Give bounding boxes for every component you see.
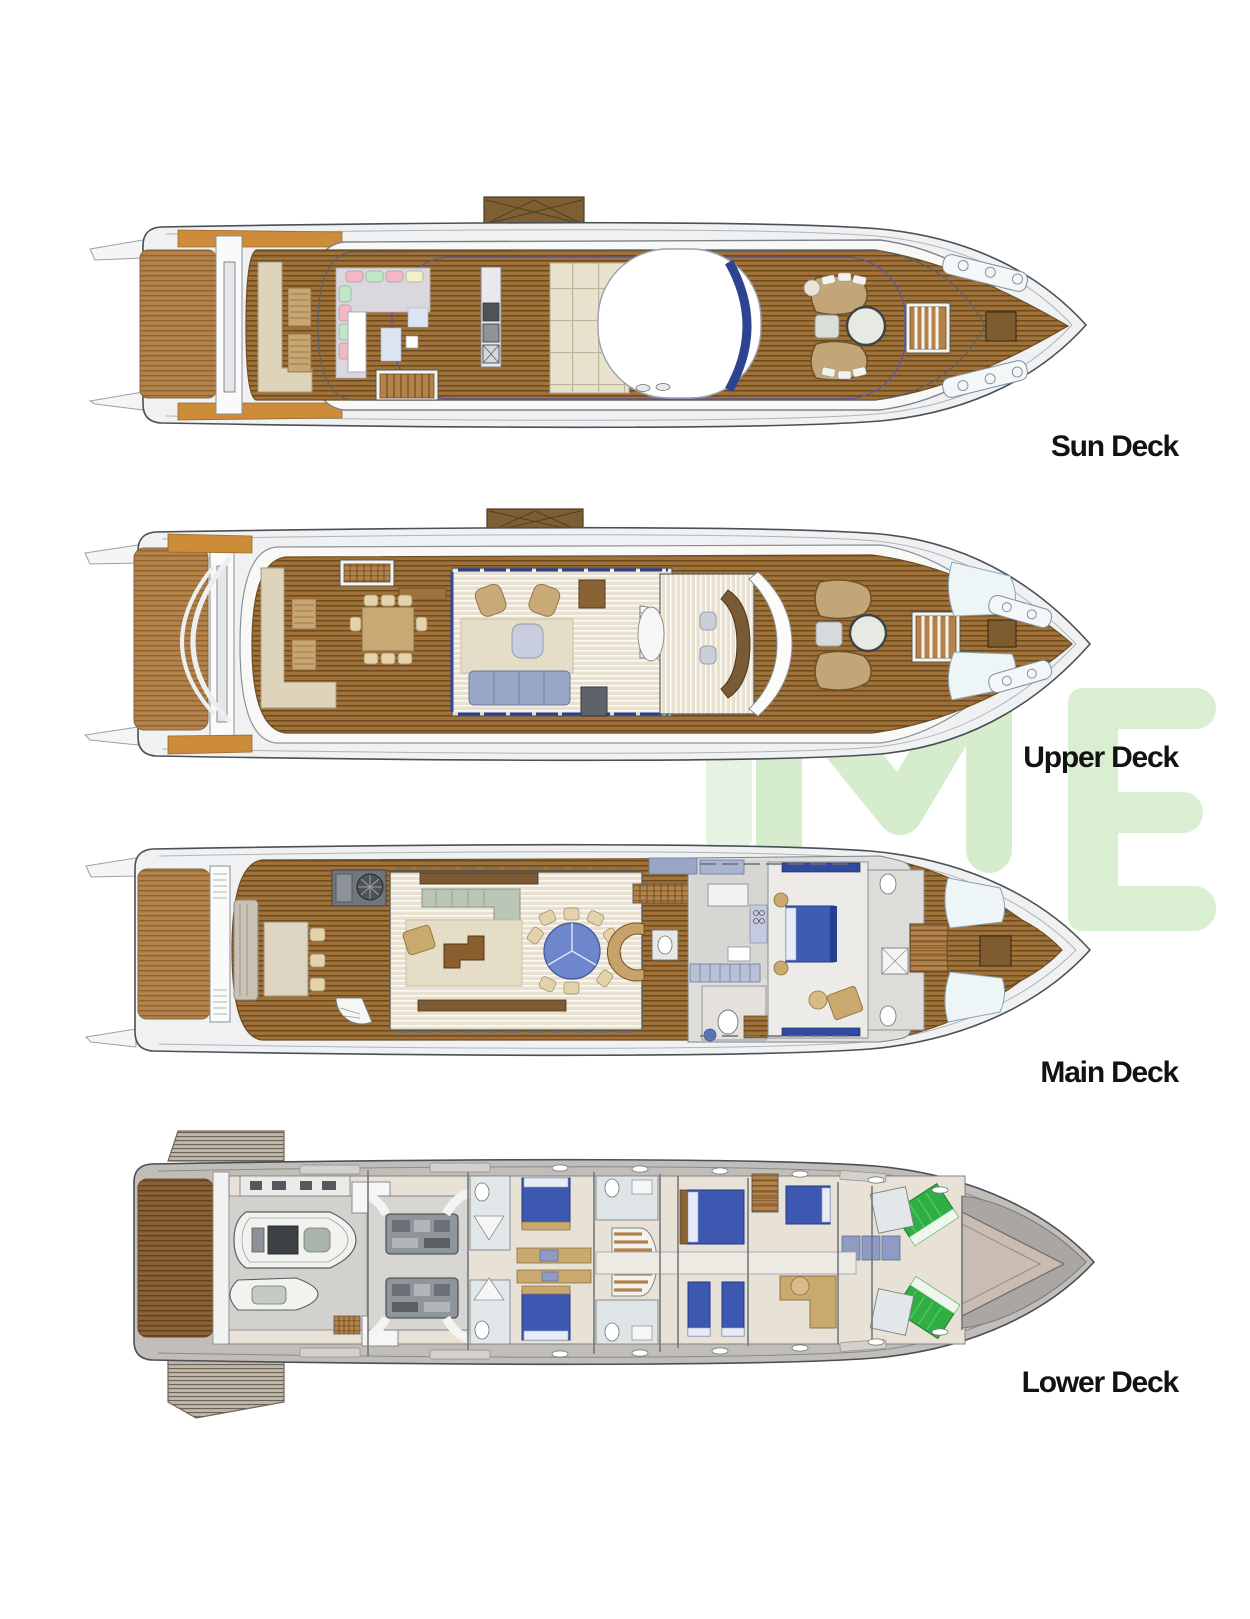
svg-text:Lower Deck: Lower Deck <box>1022 1366 1180 1399</box>
svg-text:Upper Deck: Upper Deck <box>1023 741 1179 774</box>
svg-text:Sun Deck: Sun Deck <box>1051 430 1180 463</box>
svg-text:Main Deck: Main Deck <box>1040 1056 1179 1089</box>
